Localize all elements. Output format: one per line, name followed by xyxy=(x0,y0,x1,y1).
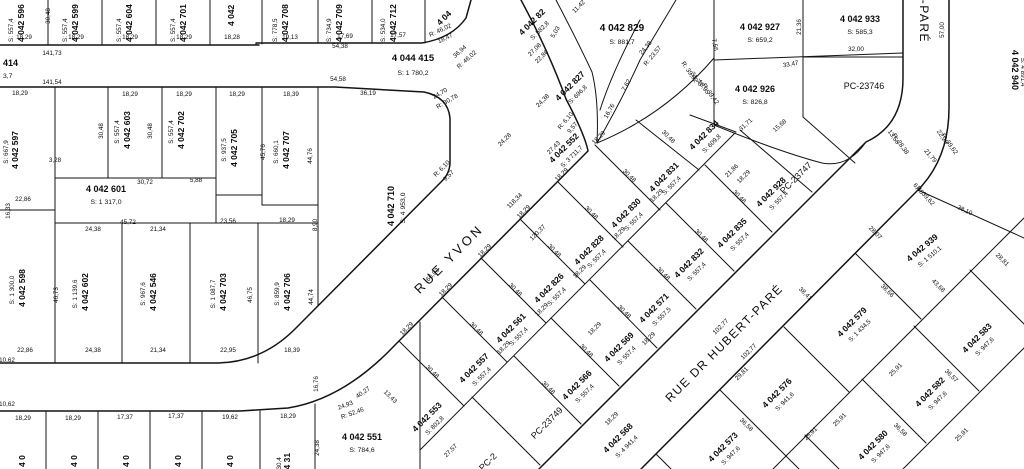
dimension-label: 18,28 xyxy=(224,34,240,41)
dimension-label: 38,66 xyxy=(879,283,895,299)
parcel-label: S: 585,3 xyxy=(847,29,873,36)
dimension-label: 17,57 xyxy=(390,32,406,39)
parcel-label: 4 042 551 xyxy=(342,432,382,442)
dimension-label: 25,91 xyxy=(832,412,848,428)
parcel-label: 4 042 703 xyxy=(218,273,228,311)
dimension-label: 18,29 xyxy=(15,415,31,422)
dimension-label: 45,76 xyxy=(260,144,267,160)
dimension-label: 21,36 xyxy=(796,19,803,35)
dimension-label: 36,58 xyxy=(892,422,908,438)
dimension-label: 18,29 xyxy=(65,415,81,422)
dimension-label: 16,76 xyxy=(313,376,320,392)
parcel-label: S: 967,6 xyxy=(140,282,147,306)
dimension-label: 120,37 xyxy=(529,223,548,242)
parcel-label: S: 557,4 xyxy=(114,120,121,144)
dimension-label: 18,29 xyxy=(280,413,296,420)
dimension-label: 24,38 xyxy=(314,440,321,456)
dimension-label: 30,48 xyxy=(45,8,52,24)
dimension-label: 22,86 xyxy=(15,196,31,203)
parcel-label: 4 042 603 xyxy=(122,111,132,149)
parcel-label: S: 659,2 xyxy=(747,37,773,44)
dimension-label: 44,74 xyxy=(308,289,315,305)
dimension-label: 102,77 xyxy=(740,342,759,361)
cadastral-map-canvas[interactable]: RUE YVONRUE DR HUBERT-PARÉRUE DR HUBERT-… xyxy=(0,0,1024,469)
dimension-label: 30,48 xyxy=(731,189,747,205)
dimension-label: 30,48 xyxy=(655,266,671,282)
street-name-label: RUE DR HUBERT-PARÉ xyxy=(917,0,932,43)
dimension-label: 18,29 xyxy=(68,34,84,41)
parcel-label: 4 042 940 xyxy=(1010,50,1020,90)
dimension-label: R: 39,62 xyxy=(940,132,960,156)
dimension-label: 25,91 xyxy=(888,362,904,378)
parcel-label: 4 042 707 xyxy=(281,131,291,169)
dimension-label: 57,00 xyxy=(939,22,946,38)
dimension-label: 10,62 xyxy=(0,401,15,408)
dimension-label: 11,42 xyxy=(571,0,587,15)
dimension-label: 19,62 xyxy=(222,414,238,421)
dimension-labels: 141,73141,5454,3854,5836,1918,2918,2918,… xyxy=(0,0,1010,459)
dimension-label: 18,29 xyxy=(641,331,657,347)
parcel-label: S: 826,8 xyxy=(742,99,768,106)
parcel-label: S: 4 891,4 xyxy=(1019,58,1024,87)
dimension-label: 30,48 xyxy=(583,205,599,221)
dimension-label: 18,29 xyxy=(477,243,493,259)
dimension-label: 16,33 xyxy=(5,203,12,219)
dimension-label: 22,86 xyxy=(17,347,33,354)
parcel-label: S: 1 139,6 xyxy=(72,279,79,308)
dimension-label: 33,47 xyxy=(782,60,799,70)
parcel-label: S: 1 300,0 xyxy=(9,275,16,304)
parcel-label: 4 042 829 xyxy=(600,23,645,34)
dimension-label: 8,90 xyxy=(312,218,319,231)
parcel-label: 4 044 415 xyxy=(392,53,435,64)
dimension-label: 18,29 xyxy=(176,91,192,98)
parcel-label: S: 1 530,4 xyxy=(276,457,283,469)
dimension-label: 31,71 xyxy=(738,117,755,133)
parcel-label: S: 734,9 xyxy=(326,18,333,42)
dimension-label: 30,48 xyxy=(693,228,709,244)
dimension-label: 18,29 xyxy=(438,282,454,298)
parcel-label: S: 557,4 xyxy=(168,120,175,144)
dimension-label: 18,29 xyxy=(736,169,752,185)
parcel-label: 3,7 xyxy=(3,73,13,80)
dimension-label: 21,79 xyxy=(922,148,938,165)
parcel-label: 4 044 31 xyxy=(282,453,292,469)
pc-parcel-label: PC-2 xyxy=(477,451,499,469)
dimension-label: 24,28 xyxy=(497,132,513,148)
dimension-label: 30,48 xyxy=(468,321,484,337)
parcel-label: S: 937,5 xyxy=(221,138,228,162)
dimension-label: 21,86 xyxy=(724,163,740,179)
dimension-label: 7,56 xyxy=(710,38,719,52)
parcel-label: S: 660,1 xyxy=(273,140,280,164)
parcel-label: S: 534,0 xyxy=(380,18,387,42)
dimension-label: 141,73 xyxy=(42,50,62,57)
dimension-label: 38,41 xyxy=(797,286,813,302)
dimension-label: 118,34 xyxy=(506,191,525,210)
dimension-label: 13,43 xyxy=(382,389,398,405)
parcel-label: 4 0 xyxy=(17,455,27,467)
dimension-label: 18,29 xyxy=(12,90,28,97)
parcel-label: 4 0 xyxy=(225,455,235,467)
dimension-label: 141,54 xyxy=(42,79,62,86)
parcel-label: 4 042 926 xyxy=(735,84,775,94)
parcel-label: 4 042 597 xyxy=(10,131,20,169)
parcel-label: S: 1 317,0 xyxy=(91,199,122,206)
parcel-label: 4 042 598 xyxy=(17,269,27,307)
parcel-label: 4 042 706 xyxy=(282,273,292,311)
dimension-label: 36,58 xyxy=(738,417,754,433)
dimension-label: R: 28,38 xyxy=(891,132,911,156)
dimension-label: 18,29 xyxy=(399,321,415,337)
dimension-label: 27,57 xyxy=(443,443,459,459)
dimension-label: 30,48 xyxy=(98,123,105,139)
dimension-label: 18,29 xyxy=(516,204,532,220)
dimension-label: 54,38 xyxy=(332,43,348,50)
parcel-label: 4 042 710 xyxy=(386,186,396,226)
dimension-label: 18,39 xyxy=(284,347,300,354)
dimension-label: 18,29 xyxy=(16,34,32,41)
dimension-label: 43,68 xyxy=(930,278,946,294)
dimension-label: 29,81 xyxy=(734,366,750,382)
dimension-label: 21,34 xyxy=(150,347,166,354)
parcel-label: S: 778,5 xyxy=(272,18,279,42)
dimension-label: 30,48 xyxy=(540,380,556,396)
dimension-label: 5,03 xyxy=(550,25,562,40)
dimension-label: 46,73 xyxy=(53,287,60,303)
parcel-label: S: 557,4 xyxy=(8,18,15,42)
dimension-label: 18,29 xyxy=(554,167,570,183)
dimension-label: R: 39,42 xyxy=(701,82,721,106)
cadastral-map-page: RUE YVONRUE DR HUBERT-PARÉRUE DR HUBERT-… xyxy=(0,0,1024,469)
parcel-label: S: 881,7 xyxy=(609,39,635,46)
parcel-label: 4 042 702 xyxy=(176,111,186,149)
parcel-label: 4 042 705 xyxy=(229,129,239,167)
dimension-label: 22,95 xyxy=(220,347,236,354)
parcel-label: S: 4 953,0 xyxy=(400,192,407,223)
dimension-label: 24,38 xyxy=(85,347,101,354)
dimension-label: 5,88 xyxy=(190,177,203,184)
parcel-label: 414 xyxy=(3,58,18,68)
dimension-label: 30,48 xyxy=(578,343,594,359)
parcel-label: S: 784,6 xyxy=(349,447,375,454)
dimension-label: 10,62 xyxy=(0,357,15,364)
dimension-label: 45,72 xyxy=(120,219,136,226)
dimension-label: 30,48 xyxy=(616,304,632,320)
dimension-label: 28,81 xyxy=(994,252,1010,268)
dimension-label: 46,75 xyxy=(247,287,254,303)
dimension-label: 18,29 xyxy=(572,264,588,280)
dimension-label: 30,48 xyxy=(147,123,154,139)
dimension-label: 15,68 xyxy=(772,118,789,134)
parcel-label: 4 042 546 xyxy=(148,273,158,311)
dimension-label: 24,38 xyxy=(535,93,551,109)
dimension-label: 30,48 xyxy=(507,282,523,298)
pc-parcel-label: PC-23746 xyxy=(844,81,885,91)
dimension-label: 30,48 xyxy=(424,364,440,380)
dimension-label: 40,27 xyxy=(355,385,372,400)
dimension-label: 18,29 xyxy=(591,130,607,146)
dimension-label: 25,91 xyxy=(803,426,819,442)
parcel-label: S: 667,9 xyxy=(3,140,10,164)
dimension-label: 18,29 xyxy=(587,321,603,337)
dimension-label: 18,39 xyxy=(283,91,299,98)
dimension-label: 17,69 xyxy=(337,33,353,40)
parcel-label: 4 042 927 xyxy=(740,22,780,32)
parcel-label: 4 042 xyxy=(226,4,236,26)
parcel-label: S: 1 087,7 xyxy=(210,279,217,308)
dimension-label: 32,00 xyxy=(848,46,864,53)
dimension-label: 30,48 xyxy=(660,129,676,145)
dimension-label: 18,29 xyxy=(229,91,245,98)
dimension-label: 18,29 xyxy=(122,91,138,98)
parcel-label: 4 042 933 xyxy=(840,14,880,24)
dimension-label: 17,37 xyxy=(117,414,133,421)
dimension-label: 21,34 xyxy=(150,226,166,233)
parcel-label: S: 859,9 xyxy=(274,282,281,306)
dimension-label: 24,38 xyxy=(85,226,101,233)
dimension-label: 36,19 xyxy=(360,90,376,97)
parcel-label: 4 042 602 xyxy=(80,273,90,311)
pc-parcel-label: PC-23749 xyxy=(529,405,565,441)
lot-boundary-lines xyxy=(0,0,1024,469)
parcel-label: 4 0 xyxy=(121,455,131,467)
dimension-label: 18,29 xyxy=(176,34,192,41)
dimension-label: 18,29 xyxy=(122,34,138,41)
dimension-label: 18,29 xyxy=(279,217,295,224)
parcel-label: 4 042 601 xyxy=(86,184,126,194)
parcel-label: S: 1 780,2 xyxy=(398,70,429,77)
dimension-label: 30,48 xyxy=(621,168,637,184)
dimension-label: 44,76 xyxy=(307,148,314,164)
parcel-label: 4 0 xyxy=(69,455,79,467)
dimension-label: 23,56 xyxy=(220,218,236,225)
dimension-label: 25,91 xyxy=(954,427,970,443)
dimension-label: 17,37 xyxy=(168,413,184,420)
parcel-label: 4 0 xyxy=(173,455,183,467)
dimension-label: 19,13 xyxy=(282,34,298,41)
dimension-label: 3,28 xyxy=(49,157,62,164)
dimension-label: 38,10 xyxy=(956,204,974,217)
dimension-label: 18,29 xyxy=(604,411,620,427)
dimension-label: 30,72 xyxy=(137,179,153,186)
dimension-label: 54,58 xyxy=(330,76,346,83)
dimension-label: 30,48 xyxy=(546,243,562,259)
